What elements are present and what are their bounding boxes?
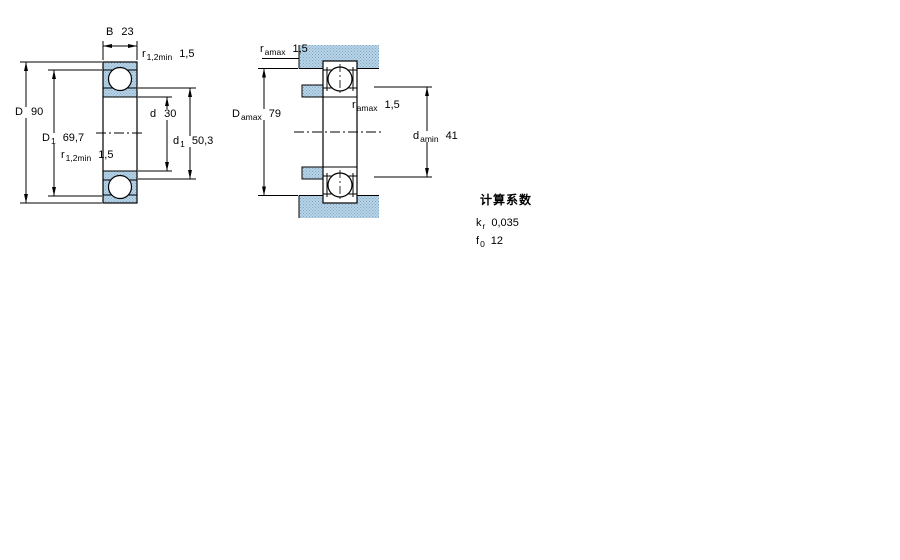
dim-label-r12min-top: r1,2min1,5 [142, 49, 194, 60]
shaft-shoulder-top [302, 85, 323, 97]
dim-label-D: D90 [13, 107, 45, 118]
dim-label-ramax-top: ramax1,5 [260, 44, 308, 55]
bearing-drawing-page: B23 r1,2min1,5 D90 D169,7 r1,2min1,5 d30… [0, 0, 900, 560]
calculation-factors-title: 计算系数 [480, 194, 532, 206]
dimension-Da-housing-shoulder [258, 69, 298, 196]
ball-top [109, 68, 132, 91]
dim-label-r12min-bottom: r1,2min1,5 [61, 150, 113, 161]
shaft-shoulder-bottom [302, 167, 323, 179]
dim-label-B: B23 [106, 27, 134, 38]
dim-label-d1: d150,3 [171, 136, 215, 147]
ball-bottom [109, 176, 132, 199]
technical-drawing-canvas [0, 0, 900, 560]
calc-factor-kr: kr0,035 [476, 218, 519, 229]
calc-factor-f0: f012 [476, 236, 503, 247]
right-drawing-mounting-section [258, 45, 432, 218]
dim-label-D1: D169,7 [40, 133, 86, 144]
dim-label-d: d30 [148, 109, 178, 120]
dim-label-Damax: Damax79 [230, 109, 283, 120]
dim-label-damin: damin41 [411, 131, 460, 142]
left-drawing-bearing-cross-section [20, 41, 196, 203]
dimension-B-width [103, 41, 137, 60]
dim-label-ramax-mid: ramax1,5 [352, 100, 400, 111]
